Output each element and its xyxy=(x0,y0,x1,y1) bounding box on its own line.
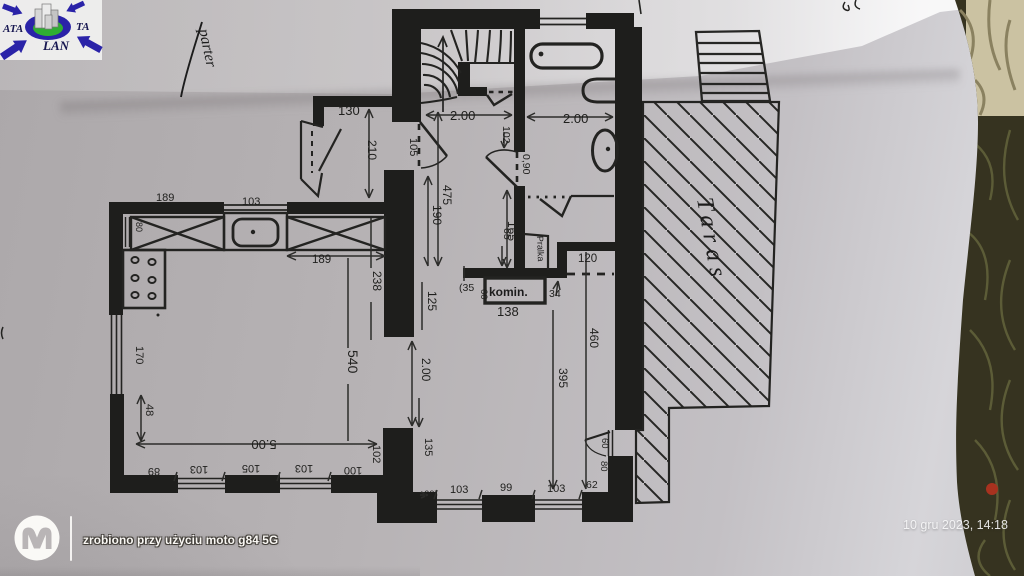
svg-text:Pralka: Pralka xyxy=(535,236,546,262)
svg-text:34: 34 xyxy=(549,288,561,300)
svg-text:103: 103 xyxy=(295,462,313,474)
svg-text:210: 210 xyxy=(365,140,379,160)
svg-text:(35: (35 xyxy=(459,282,474,294)
svg-text:62: 62 xyxy=(586,479,598,491)
svg-text:460: 460 xyxy=(587,328,601,348)
svg-text:189: 189 xyxy=(312,254,331,266)
svg-text:105: 105 xyxy=(242,462,260,474)
svg-text:475: 475 xyxy=(440,185,454,205)
svg-text:LAN: LAN xyxy=(42,38,70,53)
svg-text:80: 80 xyxy=(134,222,144,232)
svg-text:80: 80 xyxy=(598,461,609,472)
svg-text:2.00: 2.00 xyxy=(419,358,433,382)
svg-text:komin.: komin. xyxy=(489,285,528,299)
svg-text:99: 99 xyxy=(500,482,512,494)
svg-text:103: 103 xyxy=(190,463,208,475)
svg-text:89: 89 xyxy=(148,465,160,477)
svg-text:60: 60 xyxy=(599,438,610,449)
svg-text:189: 189 xyxy=(156,192,174,204)
svg-text:130: 130 xyxy=(338,103,360,118)
svg-text:100: 100 xyxy=(344,464,362,476)
svg-text:ATA: ATA xyxy=(2,23,23,35)
svg-text:102: 102 xyxy=(370,445,382,463)
svg-text:60: 60 xyxy=(478,289,489,300)
svg-text:103: 103 xyxy=(450,484,468,496)
svg-text:48: 48 xyxy=(143,404,155,416)
svg-text:2.00: 2.00 xyxy=(563,111,588,126)
svg-text:135: 135 xyxy=(422,438,434,456)
svg-text:238: 238 xyxy=(370,271,384,291)
svg-text:190: 190 xyxy=(430,205,444,225)
svg-text:103: 103 xyxy=(547,483,565,495)
svg-text:540: 540 xyxy=(345,350,361,374)
svg-text:5.00: 5.00 xyxy=(251,437,276,452)
svg-text:395: 395 xyxy=(556,368,570,388)
svg-text:102: 102 xyxy=(500,126,512,144)
svg-text:125: 125 xyxy=(425,291,439,311)
svg-text:2.00: 2.00 xyxy=(450,108,475,123)
svg-text:60): 60) xyxy=(424,489,438,500)
svg-text:0,90: 0,90 xyxy=(520,154,532,175)
svg-text:105: 105 xyxy=(407,138,419,156)
svg-text:65: 65 xyxy=(501,228,513,240)
svg-text:138: 138 xyxy=(497,304,519,319)
svg-text:103: 103 xyxy=(242,196,260,208)
svg-text:170: 170 xyxy=(133,346,145,364)
svg-text:TA: TA xyxy=(76,21,89,33)
svg-text:120: 120 xyxy=(578,253,597,265)
